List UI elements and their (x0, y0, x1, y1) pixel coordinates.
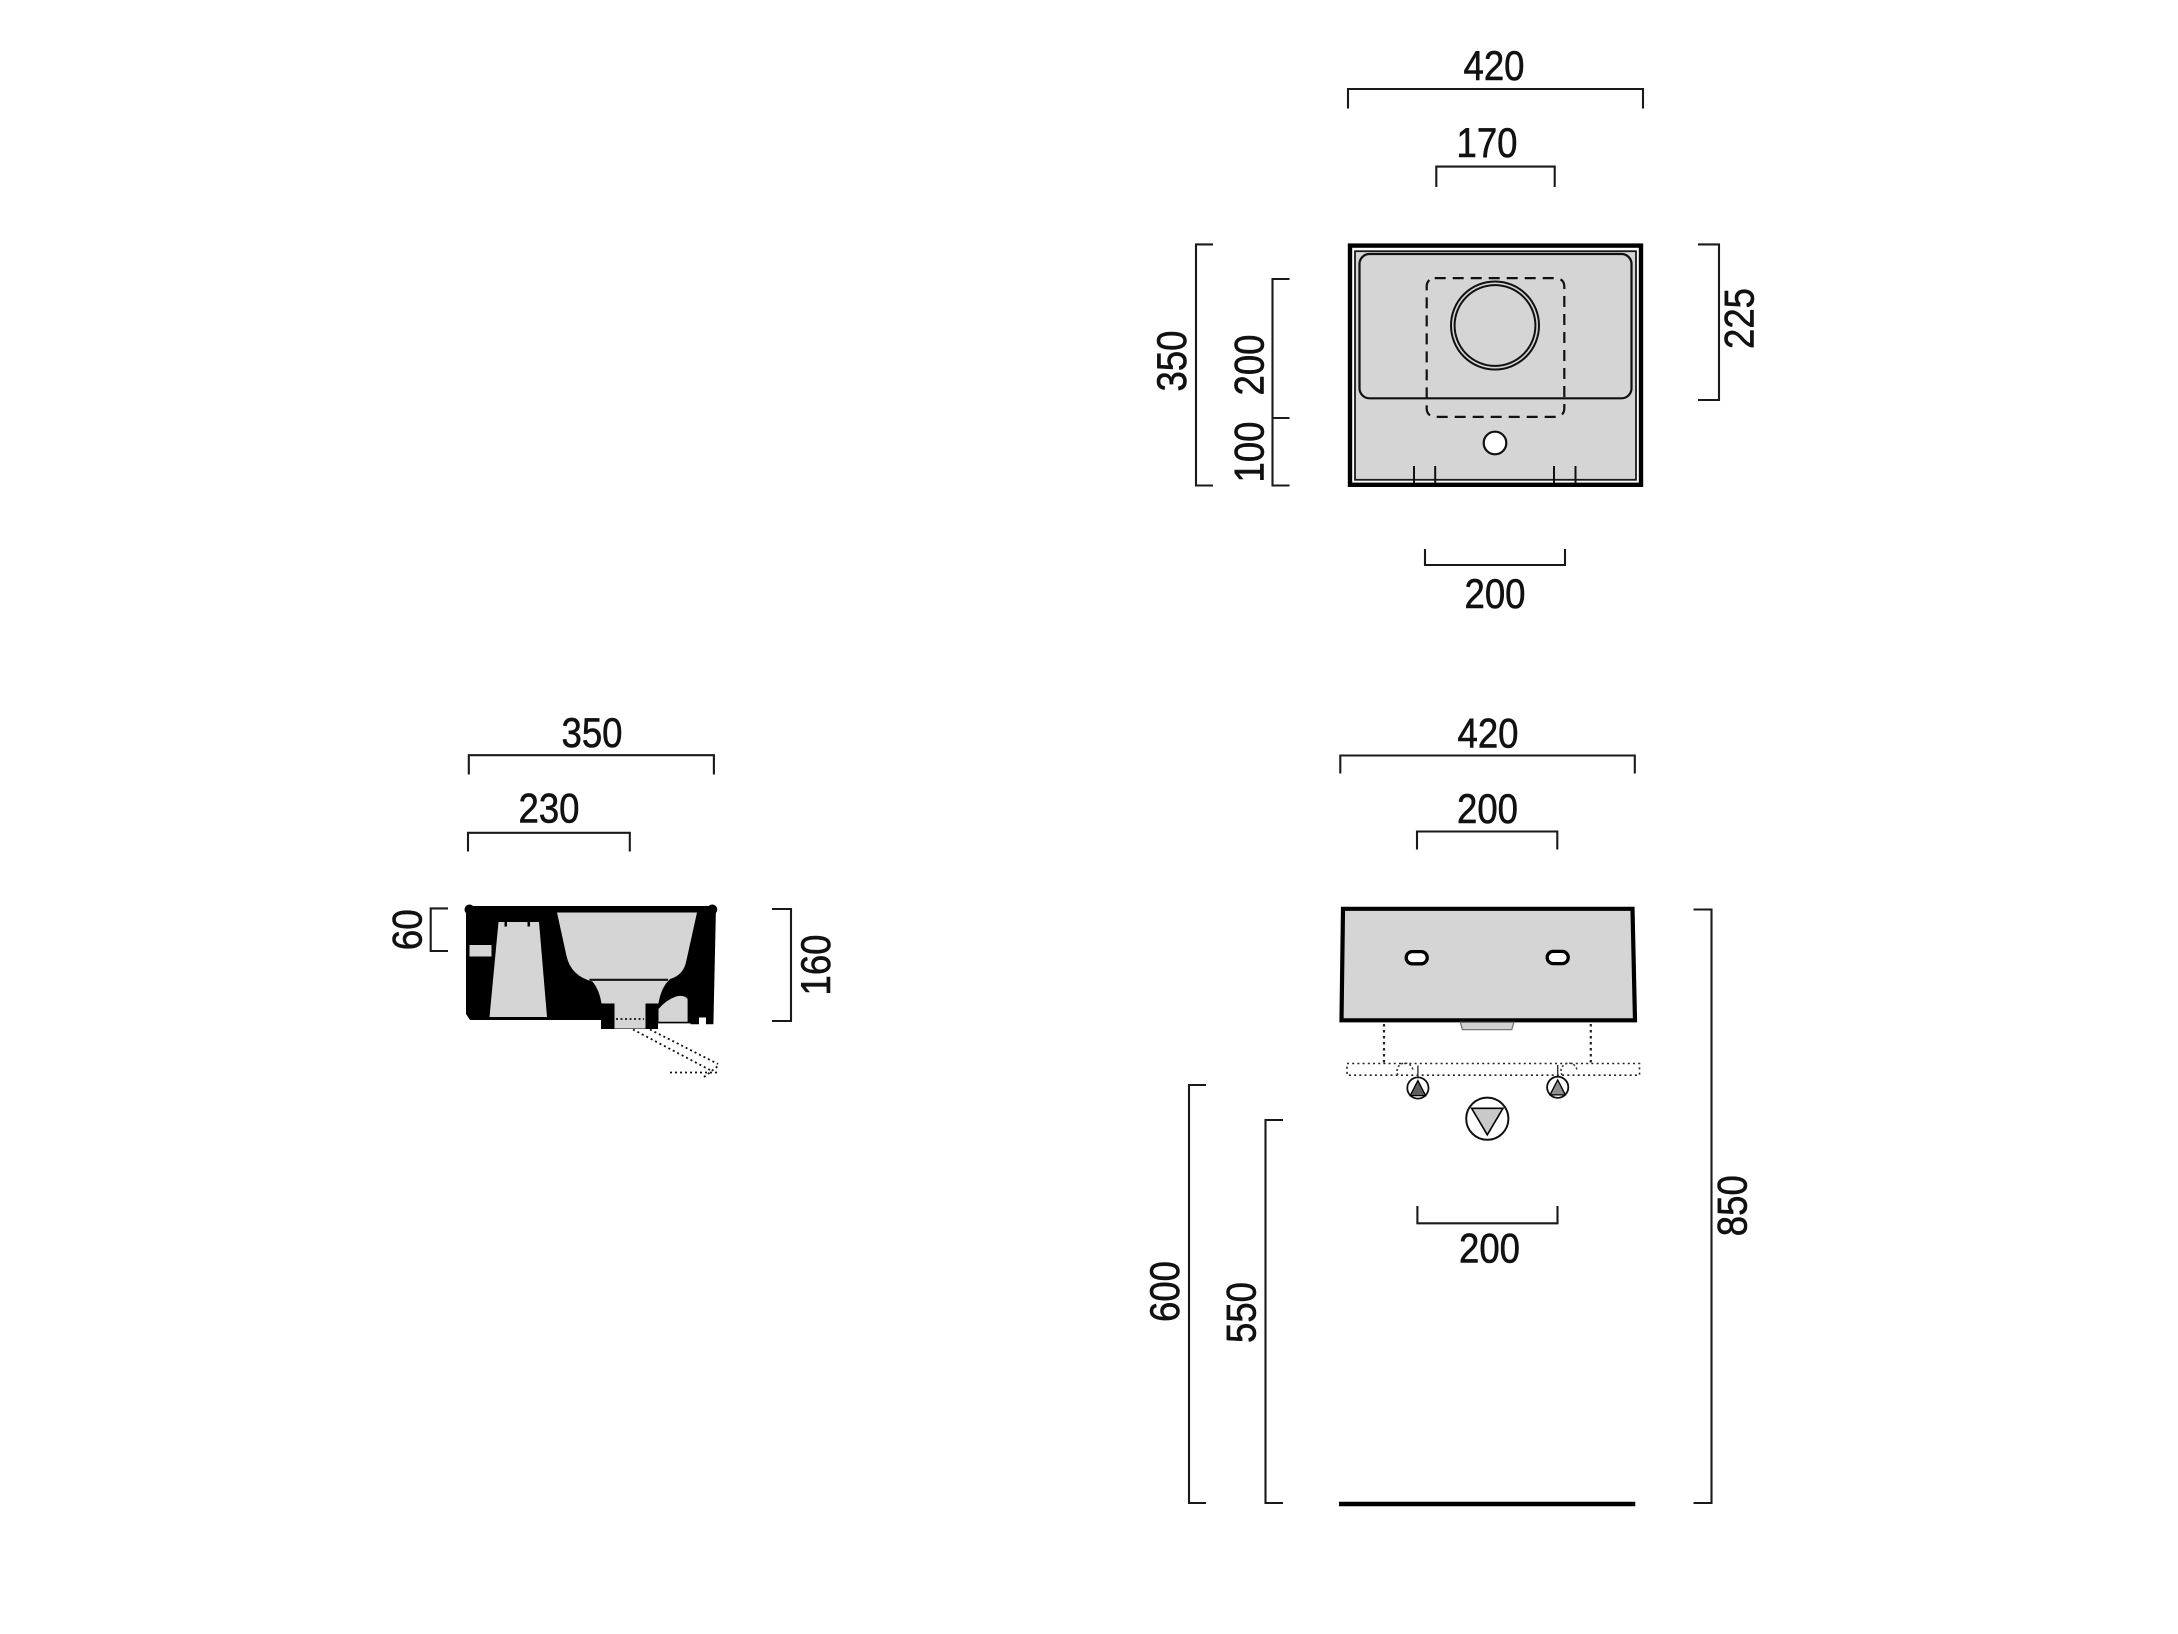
svg-text:200: 200 (1457, 785, 1518, 832)
svg-text:350: 350 (1148, 331, 1195, 392)
svg-text:850: 850 (1709, 1175, 1756, 1236)
svg-text:100: 100 (1226, 422, 1273, 483)
svg-text:170: 170 (1457, 119, 1518, 166)
svg-text:200: 200 (1459, 1225, 1520, 1272)
svg-text:550: 550 (1218, 1282, 1265, 1343)
svg-text:200: 200 (1226, 335, 1273, 396)
svg-text:225: 225 (1716, 288, 1763, 349)
svg-text:350: 350 (562, 709, 623, 756)
svg-text:60: 60 (384, 909, 431, 950)
svg-text:420: 420 (1458, 710, 1519, 757)
svg-text:420: 420 (1464, 42, 1525, 89)
svg-text:160: 160 (792, 935, 839, 996)
svg-text:200: 200 (1465, 570, 1526, 617)
svg-text:600: 600 (1141, 1261, 1188, 1322)
svg-text:230: 230 (519, 785, 580, 832)
